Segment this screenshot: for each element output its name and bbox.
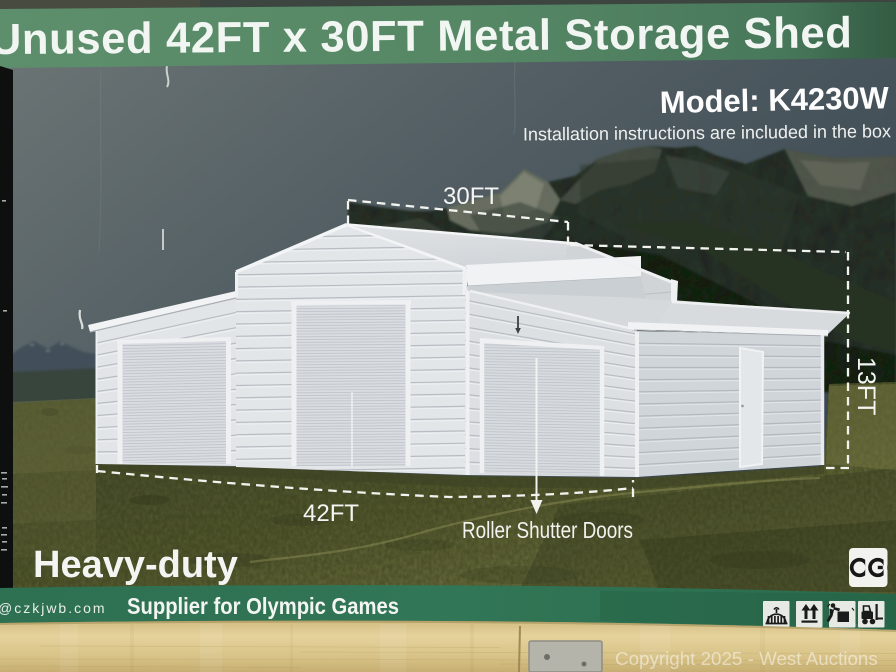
svg-text:13FT: 13FT [852, 357, 880, 415]
svg-text:Copyright 2025 - West Auction: Copyright 2025 - West Auctions [615, 648, 878, 669]
svg-text:Installation instructions are: Installation instructions are included i… [523, 121, 891, 144]
svg-text:Heavy-duty: Heavy-duty [33, 544, 238, 586]
svg-text:Model: K4230W: Model: K4230W [659, 80, 890, 120]
svg-text:Unused 42FT x 30FT Metal Stora: Unused 42FT x 30FT Metal Storage Shed [0, 9, 852, 64]
svg-text:30FT: 30FT [443, 183, 499, 210]
svg-text:42FT: 42FT [303, 500, 359, 527]
svg-text:Supplier for Olympic Games: Supplier for Olympic Games [127, 593, 399, 619]
svg-text:@czkjwb.com: @czkjwb.com [0, 600, 107, 616]
svg-text:Roller Shutter Doors: Roller Shutter Doors [462, 517, 633, 543]
